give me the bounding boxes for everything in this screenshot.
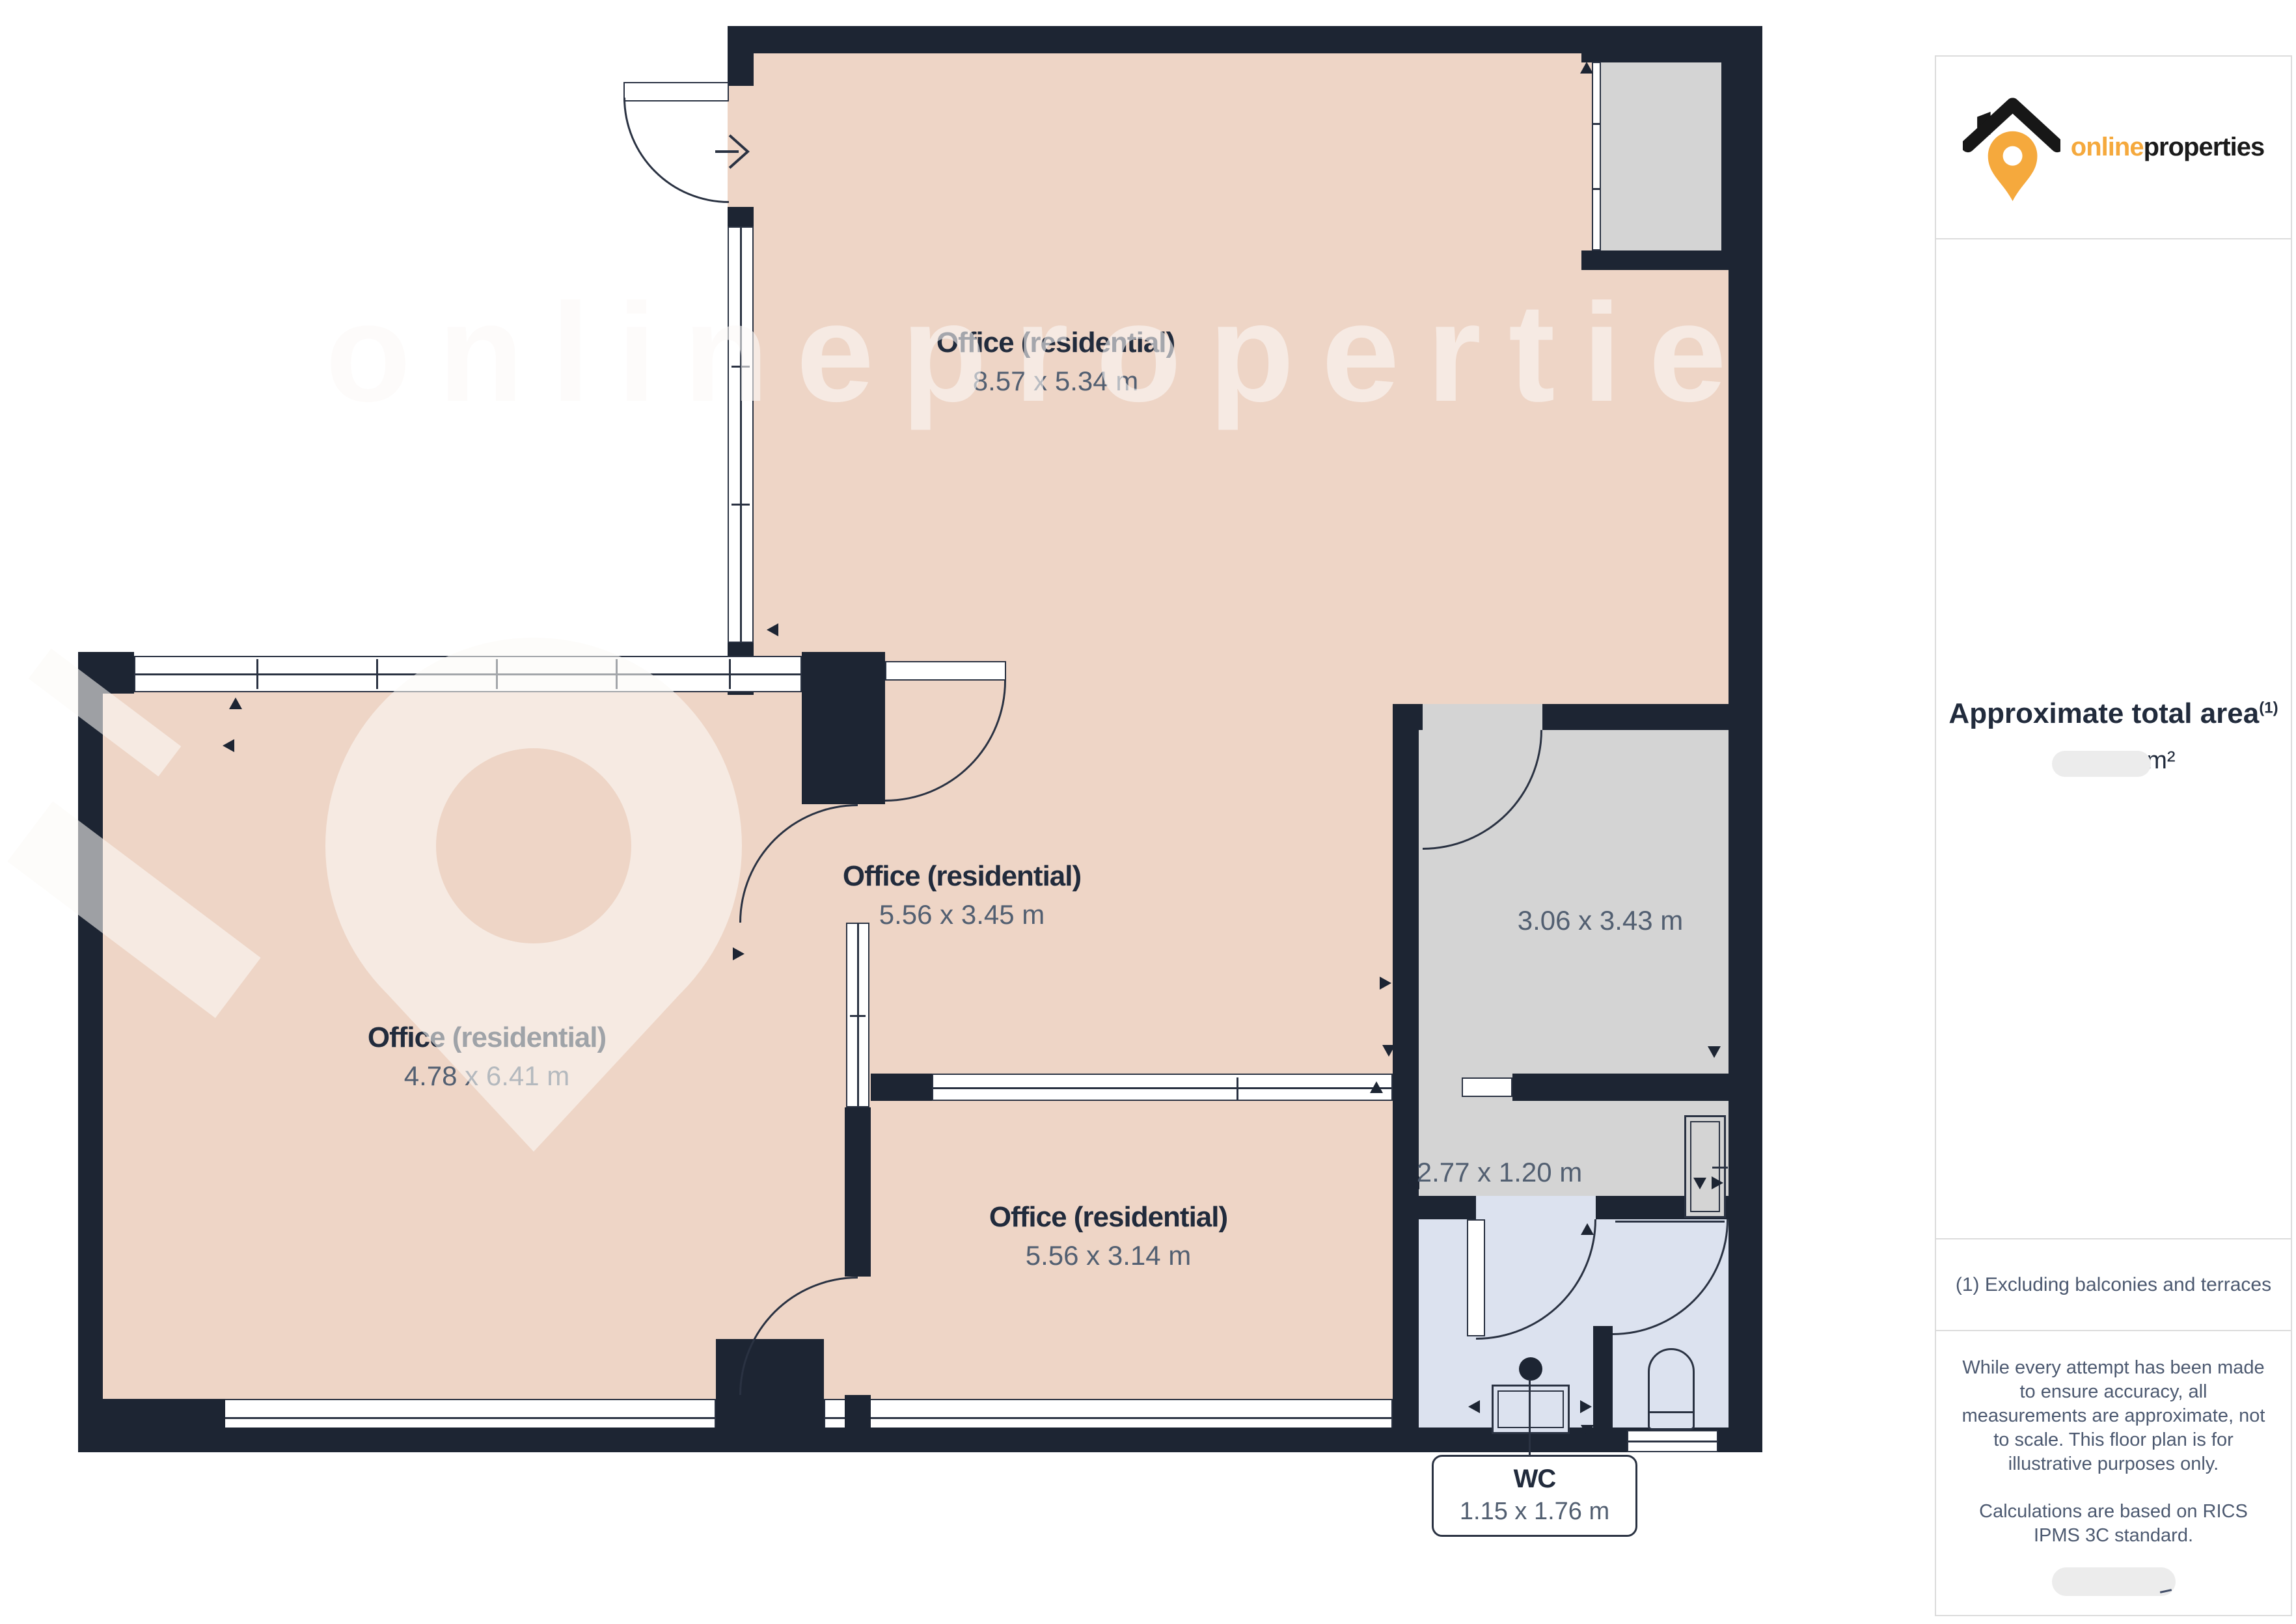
wall — [78, 652, 103, 1452]
room-dims: 5.56 x 3.14 m — [989, 1240, 1227, 1271]
appliance-fixture — [1684, 1115, 1726, 1218]
logo-section: onlineproperties — [1935, 55, 2292, 239]
footnote-text: (1) Excluding balconies and terraces — [1956, 1274, 2271, 1296]
dimension-arrow-icon — [1581, 1425, 1594, 1437]
brand-logo-icon — [1963, 93, 2060, 202]
dimension-arrow-icon — [1468, 1400, 1480, 1413]
window — [1592, 62, 1601, 250]
room-label-office-top: Office (residential) 8.57 x 5.34 m — [936, 327, 1175, 397]
signature-redaction — [2052, 1567, 2176, 1597]
wall — [728, 207, 754, 226]
dimension-arrow-icon — [1708, 1046, 1721, 1058]
dimension-arrow-icon — [1370, 1081, 1383, 1093]
wall — [1721, 53, 1729, 270]
room-name: Office (residential) — [989, 1201, 1227, 1234]
disclaimer-text-2: Calculations are based on RICS IPMS 3C s… — [1958, 1500, 2270, 1548]
brand-name: onlineproperties — [2071, 133, 2264, 162]
dimension-arrow-icon — [733, 947, 745, 960]
total-area-title: Approximate total area(1) — [1948, 697, 2278, 730]
window — [846, 923, 869, 1107]
info-sidebar: onlineproperties Approximate total area(… — [1935, 55, 2292, 1616]
room-name: Office (residential) — [368, 1022, 606, 1054]
room-dims: 8.57 x 5.34 m — [936, 366, 1175, 397]
room-label-office-middle: Office (residential) 5.56 x 3.45 m — [843, 860, 1081, 930]
total-area-unit: m² — [2146, 747, 2175, 775]
wall — [1581, 53, 1729, 62]
shower-door-leaf — [1615, 1221, 1725, 1223]
room-dims: 1.15 x 1.76 m — [1434, 1498, 1635, 1526]
room-label-office-bottom: Office (residential) 5.56 x 3.14 m — [989, 1201, 1227, 1271]
pocket-door-leaf — [1462, 1077, 1512, 1097]
room-dims: 3.06 x 3.43 m — [1518, 905, 1683, 936]
entrance-arrow-icon — [713, 129, 758, 174]
wall — [845, 1107, 871, 1277]
wall — [802, 652, 885, 804]
callout-leader-line — [1529, 1379, 1531, 1455]
disclaimer-text-1: While every attempt has been made to ens… — [1958, 1356, 2270, 1476]
door-leaf — [885, 661, 1006, 681]
window — [134, 656, 802, 692]
shaft-area — [1601, 62, 1721, 250]
brand-prefix: online — [2071, 133, 2144, 161]
wall — [728, 26, 1762, 53]
dimension-arrow-icon — [1693, 1178, 1706, 1189]
room-label-office-left: Office (residential) 4.78 x 6.41 m — [368, 1022, 606, 1092]
floorplan-page: Office (residential) 8.57 x 5.34 m Offic… — [0, 0, 2296, 1624]
dimension-arrow-icon — [1580, 1400, 1592, 1413]
redaction-pill — [2052, 751, 2151, 777]
redaction-pill — [2052, 1567, 2176, 1596]
room-label-store: 3.06 x 3.43 m — [1518, 899, 1683, 936]
footnote-marker: (1) — [2259, 699, 2278, 716]
dimension-arrow-icon — [229, 697, 242, 709]
wall — [845, 1395, 871, 1429]
wall — [1593, 1326, 1613, 1429]
floor-plan: Office (residential) 8.57 x 5.34 m Offic… — [0, 0, 1931, 1624]
room-office-top-area — [728, 53, 1729, 653]
dimension-arrow-icon — [1581, 1223, 1594, 1235]
sink-fixture — [1492, 1385, 1570, 1434]
room-name: WC — [1434, 1465, 1635, 1494]
wall — [1419, 1196, 1476, 1219]
room-dims: 4.78 x 6.41 m — [368, 1061, 606, 1092]
wc-callout: WC 1.15 x 1.76 m — [1432, 1455, 1637, 1537]
wall — [1542, 704, 1729, 730]
toilet-fixture — [1648, 1348, 1695, 1430]
tap-icon — [1519, 1357, 1542, 1381]
wall — [728, 26, 754, 86]
dimension-arrow-icon — [223, 739, 234, 752]
wall — [871, 1074, 932, 1101]
wall — [1581, 250, 1721, 270]
dimension-arrow-icon — [1380, 977, 1391, 990]
wall — [103, 652, 134, 694]
wall — [1393, 704, 1419, 1429]
wall — [1729, 26, 1762, 1452]
footnote-section: (1) Excluding balconies and terraces — [1935, 1239, 2292, 1331]
total-area-value: m² — [2052, 747, 2176, 781]
window — [1627, 1430, 1718, 1452]
window — [728, 226, 754, 643]
dimension-arrow-icon — [767, 623, 778, 636]
dimension-arrow-icon — [1693, 1080, 1706, 1092]
wall — [1393, 704, 1423, 730]
dimension-arrow-icon — [1712, 1176, 1723, 1189]
brand-suffix: properties — [2144, 133, 2265, 161]
disclaimer-section: While every attempt has been made to ens… — [1935, 1331, 2292, 1616]
room-dims: 5.56 x 3.45 m — [843, 899, 1081, 930]
window — [932, 1074, 1393, 1101]
total-area-title-text: Approximate total area — [1948, 697, 2259, 729]
total-area-section: Approximate total area(1) m² — [1935, 239, 2292, 1239]
dimension-arrow-icon — [1580, 62, 1593, 74]
dimension-arrow-icon — [1382, 1045, 1395, 1057]
room-name: Office (residential) — [843, 860, 1081, 893]
room-label-hall: 2.77 x 1.20 m — [1417, 1150, 1582, 1188]
room-dims: 2.77 x 1.20 m — [1417, 1157, 1582, 1188]
room-name: Office (residential) — [936, 327, 1175, 359]
